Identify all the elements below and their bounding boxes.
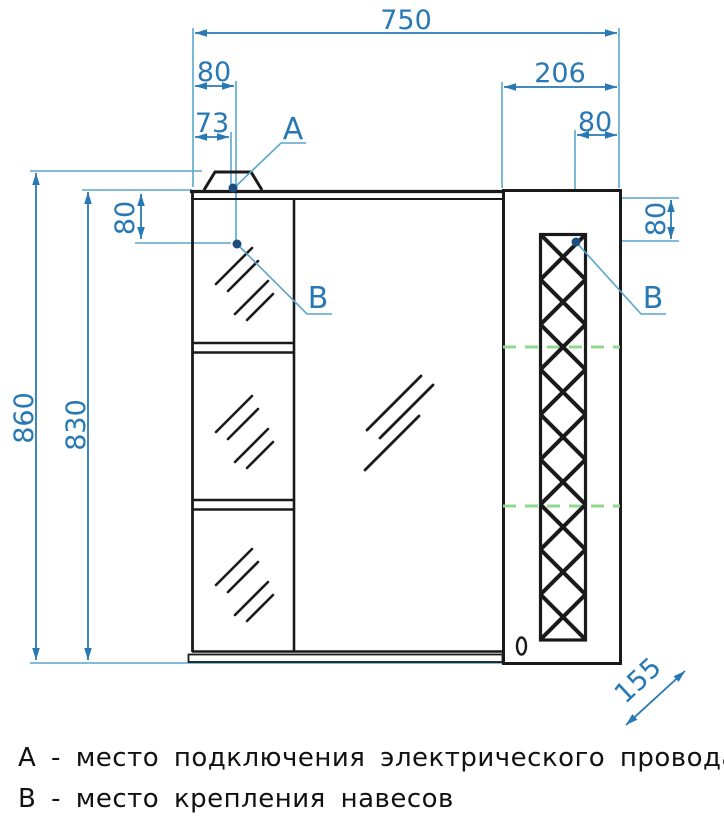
dim-value-body-height-830: 830 (61, 399, 92, 451)
dim-value-total-width: 750 (380, 5, 432, 36)
dim-value-right-offset-80: 80 (578, 107, 612, 138)
leader-point-a (233, 143, 306, 189)
legend-line-a: А - место подключения электрического про… (18, 738, 724, 779)
marker-label-a: А (283, 112, 304, 147)
dim-value-right-drop-80: 80 (641, 202, 672, 236)
mirror-hatch-panel-middle (216, 396, 273, 468)
point-a-wire-dot (229, 184, 238, 193)
mirror-cabinet-technical-drawing: 750 80 73 206 80 860 830 80 80 155 А В В… (0, 0, 724, 821)
shelf-divider-upper (193, 343, 293, 353)
point-b-hinge-dot-left (233, 240, 242, 249)
dim-value-door-width-206: 206 (534, 58, 586, 89)
marker-label-b-right: В (643, 281, 664, 316)
dim-value-total-height-860: 860 (9, 392, 40, 444)
point-b-hinge-dot-right (572, 238, 581, 247)
mirror-hatch-panel-bottom (216, 549, 273, 621)
marker-label-b-left: В (308, 281, 329, 316)
dim-value-wire-offset-73: 73 (195, 108, 229, 139)
dim-value-top-offset-80: 80 (197, 57, 231, 88)
lattice-glass-strip (541, 235, 586, 641)
door-handle (517, 638, 526, 655)
drawing-canvas: 750 80 73 206 80 860 830 80 80 155 А В В (0, 0, 724, 821)
legend-line-b: В - место крепления навесов (18, 779, 724, 820)
cabinet-base-strip (189, 655, 503, 663)
legend: А - место подключения электрического про… (18, 738, 724, 820)
dim-value-left-drop-80: 80 (110, 201, 141, 235)
mirror-hatch-main-door (365, 376, 433, 470)
shelf-divider-lower (193, 500, 293, 510)
mirror-hatch-panel-top (216, 248, 273, 320)
